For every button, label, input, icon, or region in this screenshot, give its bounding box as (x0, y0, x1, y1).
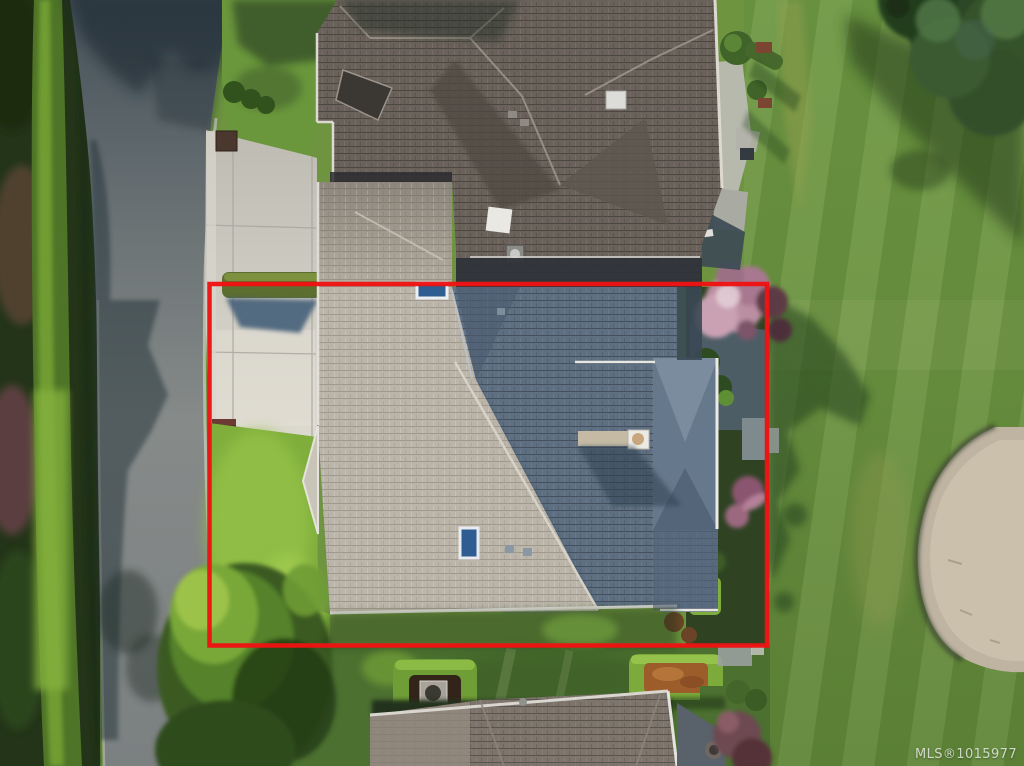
tree-bottom-left (155, 563, 336, 766)
walkway (742, 418, 766, 460)
house-shadow-on-lawn (322, 607, 677, 648)
chimney-2 (606, 91, 626, 109)
subject-house-roof (303, 283, 718, 613)
skylight (486, 207, 513, 234)
aerial-photo: MLS®1015977 (0, 0, 1024, 766)
skylight-rear (460, 528, 478, 558)
driveway (205, 130, 322, 460)
path-segment (718, 645, 752, 666)
utility-box (216, 131, 237, 151)
subject-house-upper-wing (318, 182, 452, 287)
ridge-caps (578, 431, 632, 446)
aerial-photo-scene (0, 0, 1024, 766)
sun-patch (542, 614, 618, 646)
